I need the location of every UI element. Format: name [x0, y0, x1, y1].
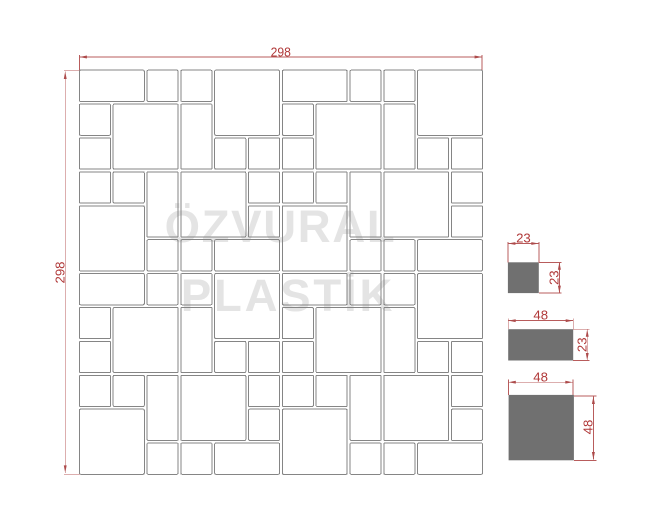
svg-text:ÖZVURAL: ÖZVURAL [165, 201, 397, 252]
svg-text:23: 23 [547, 270, 562, 285]
svg-text:298: 298 [52, 261, 67, 283]
svg-text:48: 48 [581, 420, 596, 435]
svg-text:PLASTİK: PLASTİK [181, 270, 395, 321]
svg-text:298: 298 [271, 45, 291, 60]
svg-text:48: 48 [533, 308, 548, 323]
svg-text:23: 23 [574, 337, 589, 352]
svg-text:23: 23 [516, 231, 531, 246]
svg-text:48: 48 [533, 369, 548, 384]
